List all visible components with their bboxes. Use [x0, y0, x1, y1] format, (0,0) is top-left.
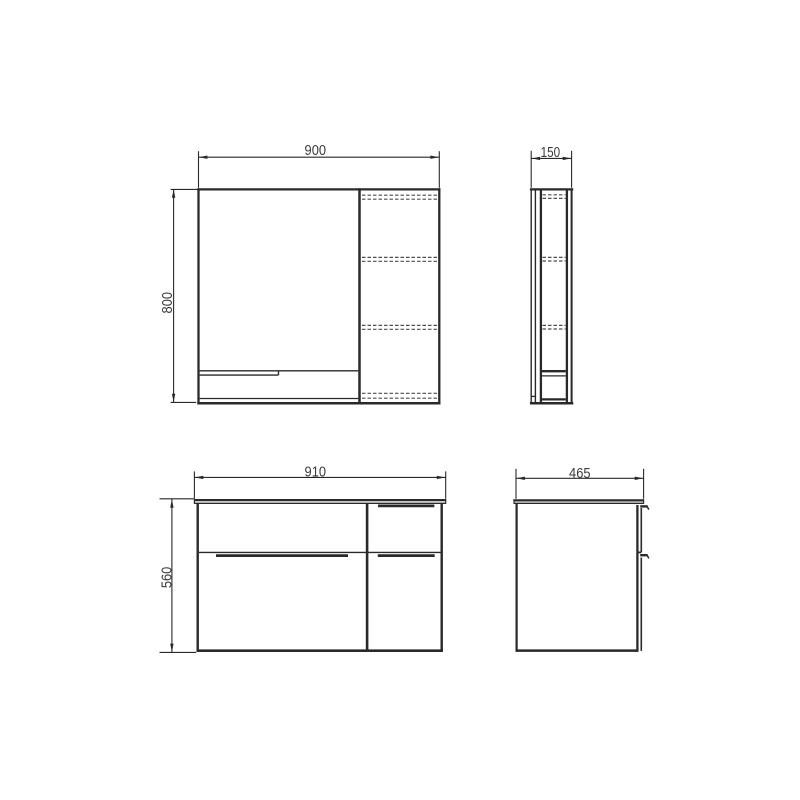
svg-text:465: 465	[569, 466, 591, 482]
svg-text:800: 800	[160, 292, 176, 314]
svg-text:560: 560	[160, 567, 176, 589]
svg-text:900: 900	[305, 143, 327, 159]
svg-text:910: 910	[305, 464, 327, 480]
svg-text:150: 150	[541, 145, 561, 161]
